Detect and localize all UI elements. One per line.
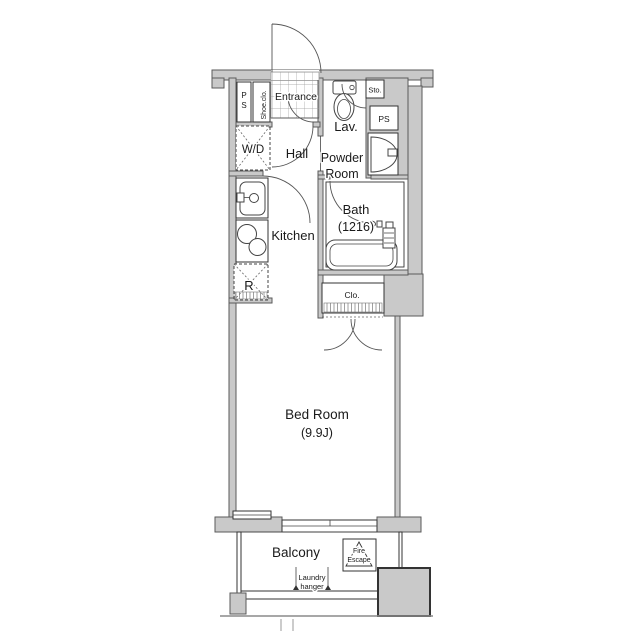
laundry-hanger-label-line1: Laundry — [298, 573, 325, 582]
kitchen-faucet-icon — [250, 194, 259, 203]
stove-burner-icon — [249, 239, 266, 256]
washbasin-faucet-icon — [388, 149, 397, 156]
powder-room-label-line1: Powder — [321, 151, 363, 165]
closet-door-left-swing-icon — [324, 319, 355, 350]
bath-label: Bath — [343, 202, 370, 217]
refrigerator-label: R — [244, 278, 253, 293]
bath-bottom-wall — [318, 270, 408, 275]
kitchen-door-swing-icon — [263, 176, 310, 223]
hall-kitchen-stub-wall — [229, 171, 263, 176]
kitchen-faucet-base-icon — [237, 193, 244, 202]
floor-plan-drawing: Entrance PS Shoe.clo. Sto. PS Lav. Powde… — [0, 0, 640, 640]
balcony-right-wall — [399, 532, 402, 568]
laundry-hanger-label-line2: hanger — [300, 582, 324, 591]
entrance-label: Entrance — [275, 91, 317, 103]
refrigerator-hatch — [235, 292, 267, 299]
closet-label: Clo. — [344, 290, 359, 300]
bedroom-size-label: (9.9J) — [301, 426, 333, 440]
balcony-bottom-wall — [241, 591, 380, 599]
lavatory-area — [333, 81, 366, 121]
bath-top-wall-right — [371, 175, 408, 179]
laundry-pole-foot-icon — [293, 585, 299, 590]
pipe-space-left-label: PS — [240, 91, 249, 111]
floor-plan-page: Entrance PS Shoe.clo. Sto. PS Lav. Powde… — [0, 0, 640, 640]
fire-escape-label-line1: Fire — [353, 548, 365, 555]
powder-room-label-line2: Room — [325, 167, 358, 181]
kitchen-counter — [236, 178, 268, 262]
balcony-area — [220, 532, 433, 631]
bedroom-label: Bed Room — [285, 407, 349, 422]
balcony-label: Balcony — [272, 545, 320, 560]
kitchen-label: Kitchen — [271, 228, 314, 243]
entrance-bottom-wall-right — [313, 122, 320, 127]
closet-hanger-hatch — [324, 303, 382, 312]
right-corner-block — [384, 274, 423, 316]
entrance-area — [271, 24, 321, 122]
hall-label: Hall — [286, 146, 309, 161]
balcony-corner-block — [378, 568, 430, 616]
bath-handle-base-icon — [377, 221, 382, 227]
bottom-wall-right-block — [377, 517, 421, 532]
top-wall-right-lip — [421, 78, 433, 87]
closet-door-right-swing-icon — [351, 319, 382, 350]
bath-mixer-top-icon — [386, 222, 393, 228]
laundry-pole-foot-icon — [325, 585, 331, 590]
balcony-left-wall — [237, 532, 241, 593]
lavatory-label: Lav. — [334, 119, 358, 134]
fire-escape-label-line2: Escape — [347, 557, 370, 564]
entrance-door-swing-icon — [272, 24, 321, 73]
pipe-space-right-label: PS — [378, 114, 390, 124]
hall-doors — [263, 126, 313, 223]
top-wall-left-lip — [212, 78, 224, 88]
right-wall — [408, 86, 422, 275]
bath-size-label: (1216) — [338, 220, 374, 234]
balcony-end-block — [230, 593, 246, 614]
toilet-bowl-icon — [334, 94, 354, 121]
bedroom-right-wall — [395, 316, 400, 517]
washer-dryer-label: W/D — [242, 144, 264, 156]
storage-label: Sto. — [368, 86, 381, 95]
toilet-tank-icon — [333, 81, 356, 94]
shoe-closet-label: Shoe.clo. — [261, 90, 268, 119]
